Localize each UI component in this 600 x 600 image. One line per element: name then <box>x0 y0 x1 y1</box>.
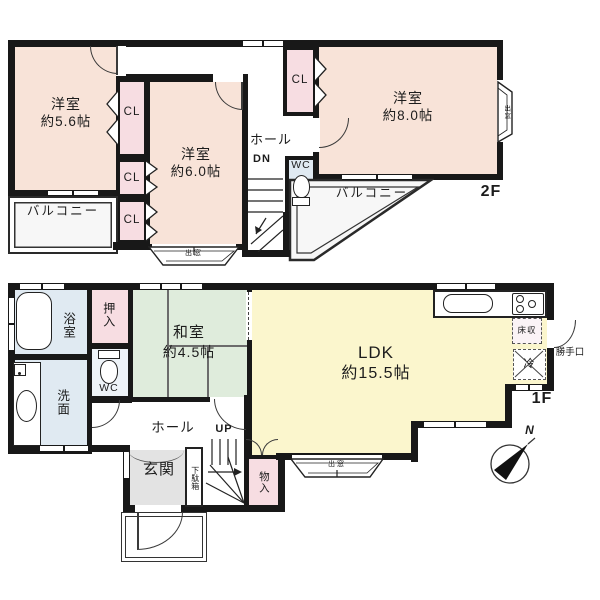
burner <box>528 300 536 308</box>
toilet-tank-2f <box>292 197 310 206</box>
window <box>437 283 495 290</box>
bay-window-label: 出窓 <box>169 249 219 259</box>
room-size: 約5.6帖 <box>41 113 92 131</box>
closet-label: CL <box>118 104 146 120</box>
stairs-dn-label: DN <box>248 153 276 166</box>
wall <box>113 242 149 250</box>
window <box>8 298 15 350</box>
window <box>342 174 412 180</box>
sliding-dash-line <box>248 292 249 340</box>
room-label: 洋室 約5.6帖 <box>12 92 120 134</box>
burner <box>516 305 524 313</box>
wall <box>283 212 289 257</box>
hall-label-1f: ホール <box>144 420 202 436</box>
washitsu-label: 和室 約4.5帖 <box>133 320 245 364</box>
monoire-label: 物入 <box>255 462 271 502</box>
bifold-icon <box>146 202 159 242</box>
compass-icon <box>486 436 540 488</box>
door-arc-washroom <box>92 400 120 428</box>
closet-label: CL <box>118 212 146 228</box>
wash-basin <box>16 390 37 422</box>
room-label: 洋室 約8.0帖 <box>325 86 491 128</box>
toilet-bowl-1f <box>100 360 118 384</box>
shoe-cabinet-label: 下駄箱 <box>189 452 200 504</box>
room-name: 洋室 <box>181 145 211 163</box>
oshiire-label: 押入 <box>100 292 116 338</box>
toilet-tank-1f <box>98 350 120 359</box>
washroom-label: 洗面 <box>54 378 70 426</box>
faucet-dot <box>18 372 21 375</box>
balcony-label: バルコニー <box>10 203 116 219</box>
room-size: 約15.5帖 <box>341 364 410 385</box>
back-door-label: 勝手口 <box>549 347 591 359</box>
entrance-label: 玄関 <box>133 461 185 479</box>
stairs-up-label: UP <box>211 423 237 436</box>
fridge-box: 冷 <box>513 349 546 380</box>
wc-label-2f: WC <box>287 159 315 172</box>
door-leaf <box>241 82 243 110</box>
window <box>123 452 130 478</box>
wc-label-1f: WC <box>94 382 124 395</box>
floor-storage-label: 床収 <box>517 325 536 336</box>
room-name: LDK <box>358 342 394 364</box>
hall-label-2f: ホール <box>244 133 298 148</box>
sliding-opening <box>246 292 252 340</box>
stairs-up-1f <box>204 439 244 507</box>
kitchen-sink <box>443 294 493 313</box>
door-arc-backdoor <box>554 320 576 348</box>
floor-label-1f: 1F <box>518 389 566 409</box>
room-name: 和室 <box>173 323 205 343</box>
window <box>48 190 98 196</box>
bathtub <box>16 292 52 350</box>
room-size: 約4.5帖 <box>163 343 215 361</box>
burner <box>516 295 524 303</box>
room-size: 約8.0帖 <box>383 107 434 125</box>
door-opening <box>213 74 243 82</box>
room-label: 洋室 約6.0帖 <box>146 142 246 184</box>
floor-plan: 洋室 約5.6帖 洋室 約6.0帖 洋室 約8.0帖 CL CL CL CL ホ… <box>0 0 600 600</box>
compass-n-label: N <box>522 424 538 438</box>
fridge-label: 冷 <box>514 350 545 379</box>
closet-label: CL <box>118 170 146 186</box>
bath-label: 浴室 <box>60 300 76 350</box>
door-opening <box>135 505 181 512</box>
stairs-down-2f <box>248 168 283 252</box>
floor-label-2f: 2F <box>468 182 514 202</box>
bay-window-label: 出窓 <box>499 94 512 130</box>
room-size: 約6.0帖 <box>171 163 222 181</box>
window <box>243 40 283 47</box>
closet-label: CL <box>286 72 314 88</box>
ldk-label: LDK 約15.5帖 <box>306 340 446 386</box>
bay-window-label: 出窓 <box>314 460 360 470</box>
window <box>40 445 88 452</box>
room-name: 洋室 <box>393 89 423 107</box>
floor-storage-box: 床収 <box>512 318 542 344</box>
door-leaf <box>116 46 118 75</box>
door-leaf <box>137 512 139 549</box>
wall <box>278 453 285 512</box>
toilet-bowl-2f <box>293 175 310 198</box>
window <box>140 283 202 290</box>
door-opening <box>547 320 554 348</box>
window <box>424 421 486 428</box>
balcony-label: バルコニー <box>318 185 426 201</box>
window <box>20 283 64 290</box>
room-name: 洋室 <box>51 95 81 113</box>
